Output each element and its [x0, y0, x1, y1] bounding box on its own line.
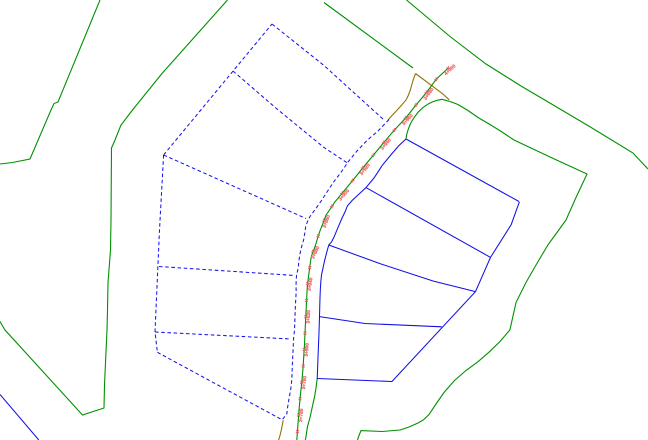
- svg-text:3+820: 3+820: [305, 310, 312, 324]
- svg-text:3+760: 3+760: [298, 408, 305, 422]
- svg-text:3+800: 3+800: [304, 343, 311, 357]
